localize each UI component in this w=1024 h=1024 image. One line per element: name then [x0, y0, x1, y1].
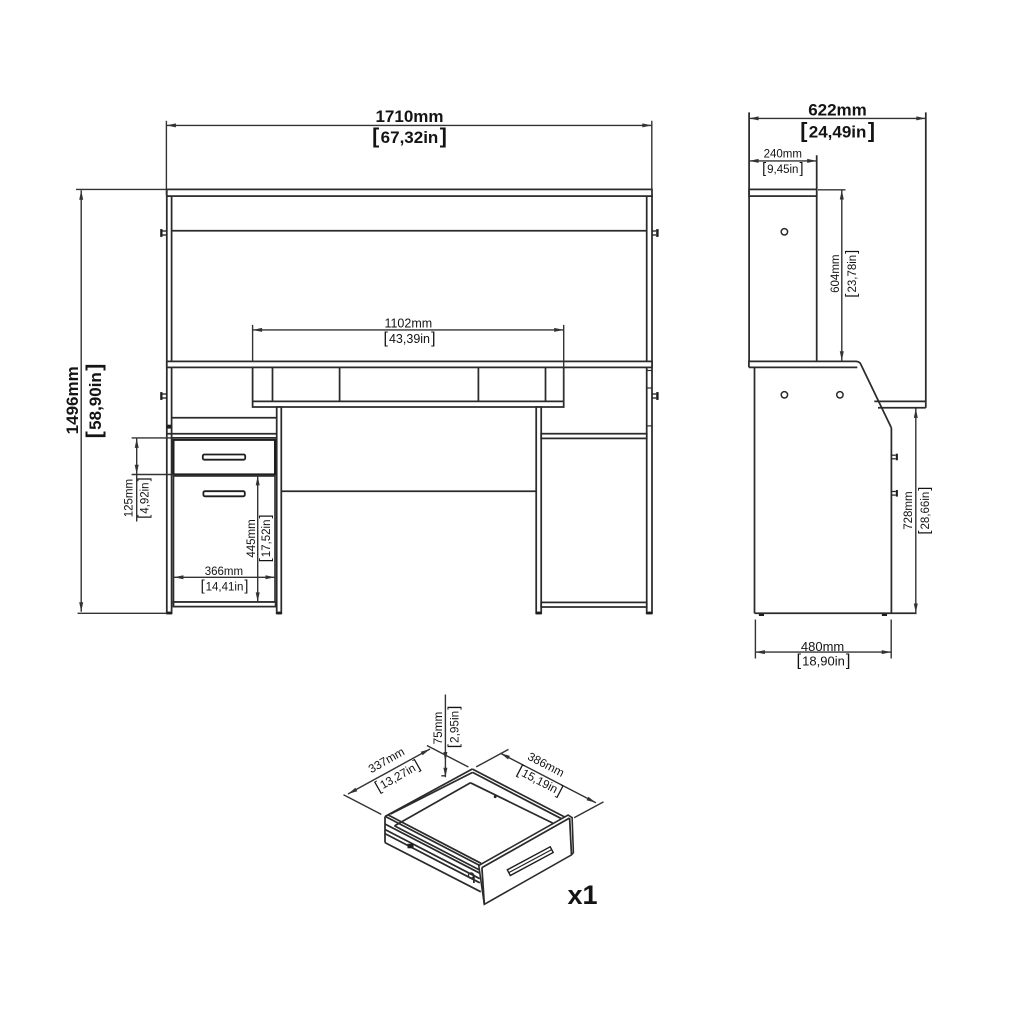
- svg-text:x1: x1: [567, 880, 597, 910]
- svg-text:1496mm: 1496mm: [63, 366, 82, 434]
- svg-text:[43,39in]: [43,39in]: [384, 330, 436, 347]
- svg-text:728mm: 728mm: [903, 491, 915, 529]
- svg-text:480mm: 480mm: [801, 639, 844, 654]
- svg-text:[28,66in]: [28,66in]: [917, 487, 933, 535]
- svg-text:1710mm: 1710mm: [375, 107, 443, 126]
- svg-text:[14,41in]: [14,41in]: [201, 579, 249, 595]
- svg-text:[17,52in]: [17,52in]: [258, 515, 274, 563]
- svg-text:[67,32in]: [67,32in]: [372, 124, 447, 148]
- svg-text:[4,92in]: [4,92in]: [137, 477, 153, 518]
- svg-text:[2,95in]: [2,95in]: [447, 706, 463, 748]
- svg-text:[18,90in]: [18,90in]: [797, 652, 851, 670]
- svg-text:1102mm: 1102mm: [384, 317, 432, 331]
- svg-text:[23,78in]: [23,78in]: [844, 250, 860, 298]
- svg-text:240mm: 240mm: [764, 149, 802, 161]
- svg-text:[24,49in]: [24,49in]: [800, 118, 875, 142]
- svg-text:[9,45in]: [9,45in]: [762, 161, 803, 177]
- svg-text:445mm: 445mm: [246, 519, 258, 557]
- svg-text:366mm: 366mm: [205, 566, 243, 578]
- svg-text:622mm: 622mm: [808, 100, 867, 119]
- svg-text:75mm: 75mm: [431, 712, 445, 745]
- svg-text:[58,90in]: [58,90in]: [82, 364, 106, 439]
- svg-text:604mm: 604mm: [830, 255, 842, 293]
- svg-text:125mm: 125mm: [124, 479, 136, 517]
